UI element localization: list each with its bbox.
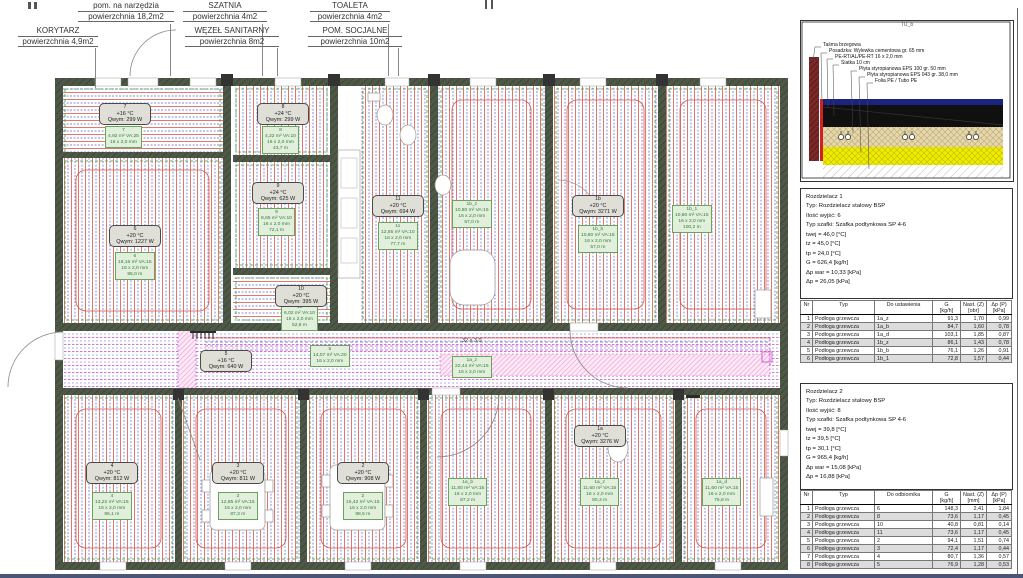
room-power: Qwym: 395 W [284,299,319,305]
pipe-dimension-label: 32 x 3,0 [462,338,482,344]
loop-label: 5 14,07 m² VA:20 16 x 2,0 mm [310,345,350,367]
callout-toaleta: TOALETA powierzchnia 4m2 [310,1,390,22]
table-cell: Podłoga grzewcza [813,537,875,545]
sheet-mark [34,2,37,9]
table-cell: Podłoga grzewcza [813,529,875,537]
table-cell: 1,85 [961,331,987,339]
loop-label: 4 13,22 m² VA:15 16 x 2,0 mm 86,1 m [92,492,132,520]
bottom-edge [0,574,1023,578]
loop-label: 3 12,85 m² VA:15 16 x 2,0 mm 87,3 m [218,492,258,520]
table-cell: 4 [875,553,933,561]
table-cell: 40,8 [933,521,961,529]
callout-leader [277,48,278,76]
table-cell: 73,6 [933,513,961,521]
table-row: 3Podłoga grzewcza1040,80,810,14 [801,521,1012,529]
room-temp: +16 °C [217,358,234,364]
room-power: Qwym: 812 W [95,476,130,482]
table-cell: 1a_d [875,331,933,339]
room-name: TOALETA [310,1,390,12]
callout-pom-narzedzia: pom. na narzędzia powierzchnia 18,2m2 [78,1,174,22]
table-cell: Podłoga grzewcza [813,315,875,323]
room-power: Qwym: 299 W [266,117,301,123]
detail-layer-label: Folia PE / Tubo PE [875,79,917,84]
loop-label: 6 18,16 m² VA:15 16 x 2,0 mm 95,0 m [115,252,155,280]
loop-label: 1b_1 10,80 m² VA:15 16 x 2,0 mm 100,2 m [672,205,712,233]
room-power: Qwym: 694 W [381,209,416,215]
table-cell: 3 [875,545,933,553]
room-area: powierzchnia 10m2 [308,37,402,48]
sheet-mark [28,2,31,9]
table-cell: 11 [875,529,933,537]
table-cell: 103,1 [933,331,961,339]
room-temp: +20 °C [229,470,246,476]
table-row: 1Podłoga grzewcza6148,32,411,84 [801,505,1012,513]
column-header: Nr [801,491,813,505]
table-cell: 76,1 [933,347,961,355]
loop-label: 1a_z 11,60 m² VA:15 16 x 2,0 mm 80,3 m [580,478,619,506]
table-cell: 0,45 [987,529,1012,537]
room-power: Qwym: 908 W [346,476,381,482]
column-header: Nast. (Z) [mm] [961,491,987,505]
table-cell: 1,28 [961,561,987,569]
table-row: 1Podłoga grzewcza1a_z91,31,700,99 [801,315,1012,323]
table-cell: 1,17 [961,545,987,553]
table-cell: 1a_z [875,315,933,323]
table-cell: 1,26 [961,347,987,355]
loop-label: 1b_b 10,80 m² VA:15 16 x 2,0 mm 57,0 m [578,225,618,253]
callout-szatnia: SZATNIA powierzchnia 4m2 [183,1,267,22]
sheet-mark [491,0,493,9]
table-row: 6Podłoga grzewcza372,41,170,44 [801,545,1012,553]
column-header: Typ [813,301,875,315]
room-power: Qwym: 625 W [261,196,296,202]
room-power-box: 8 +24 °C Qwym: 299 W [257,103,309,125]
table-row: 5Podłoga grzewcza1b_b76,11,260,91 [801,347,1012,355]
column-header: Δp (P) [kPa] [987,301,1012,315]
table-cell: 8 [875,513,933,521]
table-cell: 1,43 [961,339,987,347]
table-cell: 84,7 [933,323,961,331]
table-cell: 1,36 [961,553,987,561]
loop-label: 7 4,92 m² VA:25 16 x 2,0 mm [105,126,142,148]
table-header-row: NrTypDo ustawieniaG [kg/h]Nast. (Z) [obr… [801,301,1012,315]
table-cell: 0,57 [987,553,1012,561]
table-cell: 1a_b [875,323,933,331]
table-cell: 0,78 [987,323,1012,331]
table-row: 2Podłoga grzewcza1a_b84,71,600,78 [801,323,1012,331]
room-temp: +20 °C [389,203,406,209]
table-cell: 3 [801,521,813,529]
room-power-box: 1b +20 °C Qwym: 3271 W [572,195,624,217]
table-cell: 2 [801,513,813,521]
table-cell: 1 [801,315,813,323]
floorplan-page: KORYTARZ powierzchnia 4,9m2 pom. na narz… [0,0,1023,578]
table-row: 7Podłoga grzewcza480,71,360,57 [801,553,1012,561]
loop-label: 1a_b 11,80 m² VA:15 16 x 2,0 mm 87,2 m [448,478,487,506]
table-cell: 1,17 [961,513,987,521]
table-cell: 73,6 [933,529,961,537]
table-cell: 91,3 [933,315,961,323]
room-power-box: 11 +20 °C Qwym: 694 W [372,195,424,217]
room-name: WĘZEŁ SANITARNY [185,26,279,37]
loop-label: 1b_z 10,80 m² VA:15 16 x 2,0 mm 57,0 m [452,200,492,228]
room-temp: +20 °C [589,203,606,209]
room-area: powierzchnia 4,9m2 [18,37,98,48]
table-cell: 0,81 [961,521,987,529]
table-cell: 8 [801,561,813,569]
table-cell: 0,78 [987,339,1012,347]
table-cell: Podłoga grzewcza [813,331,875,339]
loop-label: 8 4,22 m² VA:10 16 x 2,0 mm 43,7 m [262,126,299,154]
room-temp: +16 °C [116,111,133,117]
table-cell: 0,44 [987,355,1012,363]
loop-label: 9 8,65 m² VA:10 16 x 2,0 mm 72,1 m [258,208,295,236]
table-cell: Podłoga grzewcza [813,339,875,347]
table-cell: Podłoga grzewcza [813,355,875,363]
table-cell: Podłoga grzewcza [813,561,875,569]
manifold-1-spec: Rozdzielacz 1 Typ: Rozdzielacz stalowy B… [800,188,1013,299]
room-power: Qwym: 3271 W [579,209,617,215]
table-cell: 0,99 [987,315,1012,323]
room-power: Qwym: 299 W [108,117,143,123]
column-header: Do odbiornika [875,491,933,505]
table-cell: 1b_1 [875,355,933,363]
table-cell: 1,70 [961,315,987,323]
table-cell: 72,4 [933,545,961,553]
construction-detail-box: TU_b [800,20,1014,182]
manifold-2-table: NrTypDo odbiornikaG [kg/h]Nast. (Z) [mm]… [800,490,1012,569]
callout-wezel: WĘZEŁ SANITARNY powierzchnia 8m2 [185,26,279,47]
room-name: SZATNIA [183,1,267,12]
table-row: 8Podłoga grzewcza576,91,280,53 [801,561,1012,569]
table-cell: 2 [875,537,933,545]
table-cell: 1 [801,505,813,513]
table-cell: 80,7 [933,553,961,561]
column-header: Nast. (Z) [obr] [961,301,987,315]
table-cell: 0,87 [987,331,1012,339]
column-header: Typ [813,491,875,505]
loop-label: 11 12,55 m² VA:10 16 x 2,0 mm 77,7 m [378,222,418,250]
room-power-box: 4 +20 °C Qwym: 812 W [86,462,138,484]
loop-label: 1a_z 22,44 m² VA:15 16 x 2,0 mm [452,356,492,378]
table-cell: 0,45 [987,513,1012,521]
room-power-box: 7 +16 °C Qwym: 299 W [99,103,151,125]
table-cell: 76,9 [933,561,961,569]
table-cell: 94,1 [933,537,961,545]
table-cell: 5 [875,561,933,569]
table-cell: 1,57 [961,355,987,363]
table-cell: Podłoga grzewcza [813,553,875,561]
loop-label: 1a_d 11,60 m² VA:15 16 x 2,0 mm 75,8 m [702,478,741,506]
table-cell: 1b_b [875,347,933,355]
table-row: 4Podłoga grzewcza1b_z86,11,430,78 [801,339,1012,347]
room-temp: +20 °C [292,293,309,299]
table-cell: 4 [801,339,813,347]
table-cell: 0,74 [987,537,1012,545]
room-power: Qwym: 811 W [221,476,255,482]
table-cell: Podłoga grzewcza [813,347,875,355]
column-header: Do ustawienia [875,301,933,315]
room-temp: +20 °C [103,470,120,476]
table-cell: 10 [875,521,933,529]
table-cell: 6 [801,355,813,363]
table-header-row: NrTypDo odbiornikaG [kg/h]Nast. (Z) [mm]… [801,491,1012,505]
table-cell: 6 [875,505,933,513]
room-temp: +20 °C [354,470,371,476]
table-cell: 1,51 [961,537,987,545]
room-temp: +20 °C [126,233,143,239]
room-power: Qwym: 1227 W [116,239,154,245]
manifold-2-spec: Rozdzielacz 2 Typ: Rozdzielacz stalowy B… [800,383,1013,490]
room-name: POM. SOCJALNE [308,26,402,37]
room-power: Qwym: 640 W [209,364,244,370]
column-header: G [kg/h] [933,491,961,505]
room-power-box: 10 +20 °C Qwym: 395 W [275,285,327,307]
table-row: 4Podłoga grzewcza1173,61,170,45 [801,529,1012,537]
room-name: pom. na narzędzia [78,1,174,12]
column-header: G [kg/h] [933,301,961,315]
page-border [1017,8,1018,574]
table-row: 6Podłoga grzewcza1b_172,81,570,44 [801,355,1012,363]
room-temp: +20 °C [591,433,608,439]
table-cell: 0,91 [987,347,1012,355]
room-temp: +24 °C [274,111,291,117]
room-power-box: 3 +20 °C Qwym: 811 W [212,462,264,484]
room-area: powierzchnia 18,2m2 [78,12,174,23]
room-area: powierzchnia 8m2 [185,37,279,48]
room-power-box: 5 +16 °C Qwym: 640 W [200,350,252,372]
room-power-box: 9 +24 °C Qwym: 625 W [252,182,304,204]
room-area: powierzchnia 4m2 [310,12,390,23]
manifold-1-table: NrTypDo ustawieniaG [kg/h]Nast. (Z) [obr… [800,300,1012,363]
table-cell: 1b_z [875,339,933,347]
room-area: powierzchnia 4m2 [183,12,267,23]
table-row: 2Podłoga grzewcza873,61,170,45 [801,513,1012,521]
table-cell: 0,53 [987,561,1012,569]
table-cell: 7 [801,553,813,561]
table-cell: 5 [801,347,813,355]
table-cell: 4 [801,529,813,537]
table-cell: Podłoga grzewcza [813,545,875,553]
loop-label: 10 6,02 m² VA:10 16 x 2,0 mm 52,8 m [281,303,318,331]
table-cell: Podłoga grzewcza [813,505,875,513]
table-cell: 5 [801,537,813,545]
table-cell: 0,14 [987,521,1012,529]
table-cell: 72,8 [933,355,961,363]
table-cell: 0,44 [987,545,1012,553]
sheet-mark [485,0,487,9]
table-cell: 148,3 [933,505,961,513]
room-name: KORYTARZ [18,26,98,37]
room-power: Qwym: 3276 W [581,439,619,445]
table-cell: Podłoga grzewcza [813,323,875,331]
column-header: Δp (P) [kPa] [987,491,1012,505]
callout-korytarz: KORYTARZ powierzchnia 4,9m2 [18,26,98,47]
callout-leader [95,48,96,88]
table-cell: 6 [801,545,813,553]
table-cell: Podłoga grzewcza [813,521,875,529]
table-cell: Podłoga grzewcza [813,513,875,521]
table-cell: 1,17 [961,529,987,537]
room-temp: +24 °C [269,190,286,196]
callout-pom-socjalne: POM. SOCJALNE powierzchnia 10m2 [308,26,402,47]
table-row: 3Podłoga grzewcza1a_d103,11,850,87 [801,331,1012,339]
table-cell: 2,41 [961,505,987,513]
callout-leader [398,48,399,76]
table-row: 5Podłoga grzewcza294,11,510,74 [801,537,1012,545]
room-power-box: 6 +20 °C Qwym: 1227 W [109,225,161,247]
room-power-box: 1a +20 °C Qwym: 3276 W [574,425,626,447]
table-cell: 86,1 [933,339,961,347]
table-cell: 2 [801,323,813,331]
table-cell: 3 [801,331,813,339]
table-cell: 1,84 [987,505,1012,513]
table-cell: 1,60 [961,323,987,331]
loop-label: 2 15,42 m² VA:15 16 x 2,0 mm 88,5 m [343,492,383,520]
callout-leader [170,24,171,76]
room-power-box: 2 +20 °C Qwym: 908 W [337,462,389,484]
column-header: Nr [801,301,813,315]
